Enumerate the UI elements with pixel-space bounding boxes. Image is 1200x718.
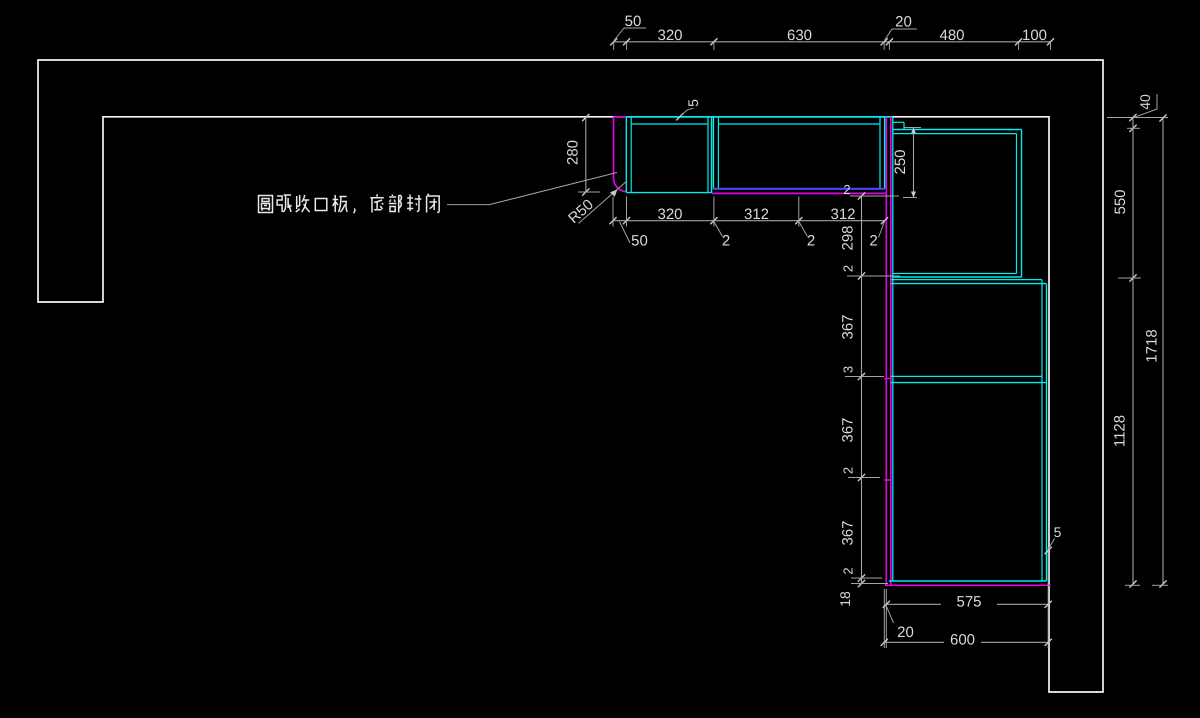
svg-text:250: 250 [892,149,909,174]
svg-text:320: 320 [657,206,682,223]
svg-text:600: 600 [950,632,975,649]
svg-text:2: 2 [807,233,815,250]
svg-text:18: 18 [837,591,853,607]
svg-text:320: 320 [657,27,682,44]
svg-text:575: 575 [956,594,981,611]
svg-text:5: 5 [685,99,701,107]
svg-text:2: 2 [841,567,856,574]
svg-text:630: 630 [787,27,812,44]
svg-text:100: 100 [1022,27,1047,44]
svg-text:20: 20 [897,624,914,641]
svg-text:2: 2 [722,233,730,250]
svg-text:20: 20 [895,14,912,31]
svg-text:550: 550 [1112,189,1129,214]
svg-text:2: 2 [841,265,856,272]
svg-text:5: 5 [1054,524,1062,540]
svg-text:1128: 1128 [1112,415,1129,447]
svg-text:1718: 1718 [1144,329,1161,362]
svg-text:2: 2 [841,467,856,474]
svg-text:298: 298 [840,225,857,250]
svg-text:2: 2 [869,233,877,250]
svg-text:367: 367 [840,417,857,442]
svg-text:50: 50 [631,233,648,250]
svg-text:2: 2 [843,182,850,197]
svg-text:3: 3 [841,366,856,373]
svg-text:367: 367 [840,520,857,545]
svg-text:480: 480 [939,27,964,44]
svg-text:312: 312 [830,206,855,223]
svg-text:50: 50 [625,13,642,30]
svg-text:312: 312 [744,206,769,223]
svg-text:280: 280 [565,140,582,165]
svg-text:367: 367 [840,314,857,339]
svg-text:40: 40 [1137,94,1153,110]
